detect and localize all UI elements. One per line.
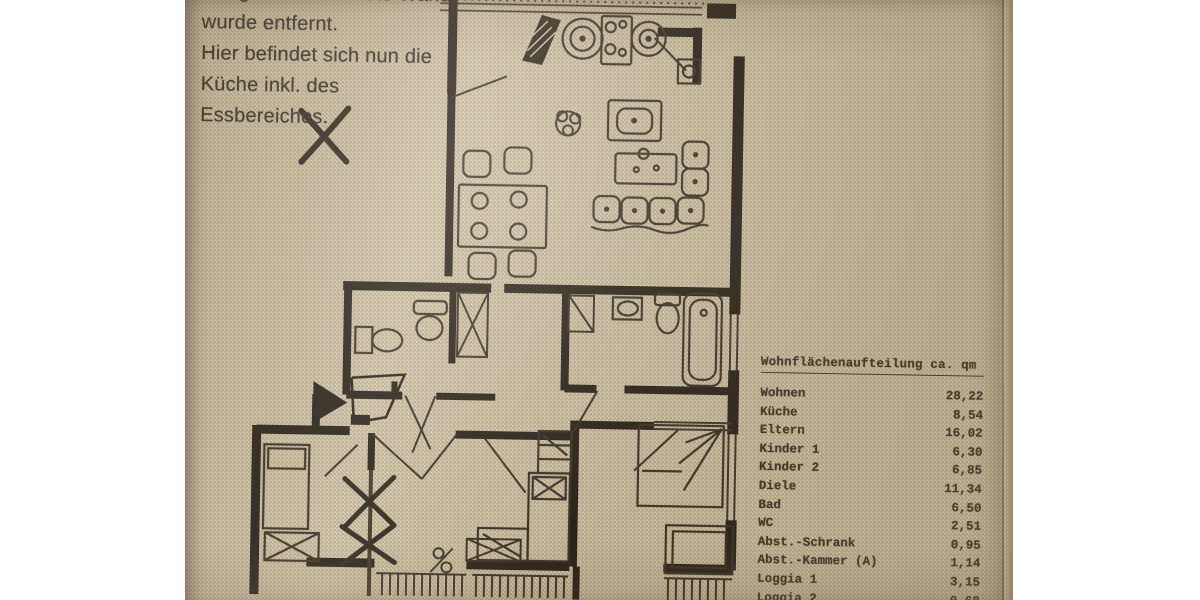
child-room-1-furniture <box>262 444 320 561</box>
living-room-furniture <box>591 100 710 234</box>
table-row: Diele11,34 <box>759 477 982 499</box>
living-area-table: Wohnflächenaufteilung ca. qm Wohnen28,22… <box>757 355 984 600</box>
plant <box>556 111 580 135</box>
page-right-edge <box>1004 0 1013 600</box>
removed-wall-hatch-marker <box>522 15 561 66</box>
bathroom-fixtures <box>612 292 723 386</box>
window-x-box <box>466 539 520 562</box>
parents-bed <box>636 425 735 575</box>
photo-of-floorplan-page: Die gekennzeichnete Wand wurde entfernt.… <box>0 0 1200 600</box>
threshold-symbol <box>430 548 452 572</box>
kitchen-appliances <box>562 15 701 83</box>
wc-fixtures <box>355 300 447 355</box>
note-line: Küche inkl. des <box>200 69 480 105</box>
storage-closet <box>568 295 594 331</box>
shaft-x-box <box>457 293 488 358</box>
child-room-2-furniture <box>477 430 571 562</box>
dining-table <box>457 147 547 281</box>
note-line: wurde entfernt. <box>202 7 482 43</box>
page-content: Die gekennzeichnete Wand wurde entfernt.… <box>185 0 1013 600</box>
annotation-note: Die gekennzeichnete Wand wurde entfernt.… <box>200 0 483 136</box>
scanned-page: Die gekennzeichnete Wand wurde entfernt.… <box>185 0 1013 600</box>
note-line: Essbereiches. <box>200 100 480 136</box>
loggia-railings <box>376 573 732 600</box>
note-line: Hier befindet sich nun die <box>201 38 481 74</box>
table-title: Wohnflächenaufteilung ca. qm <box>761 355 984 377</box>
